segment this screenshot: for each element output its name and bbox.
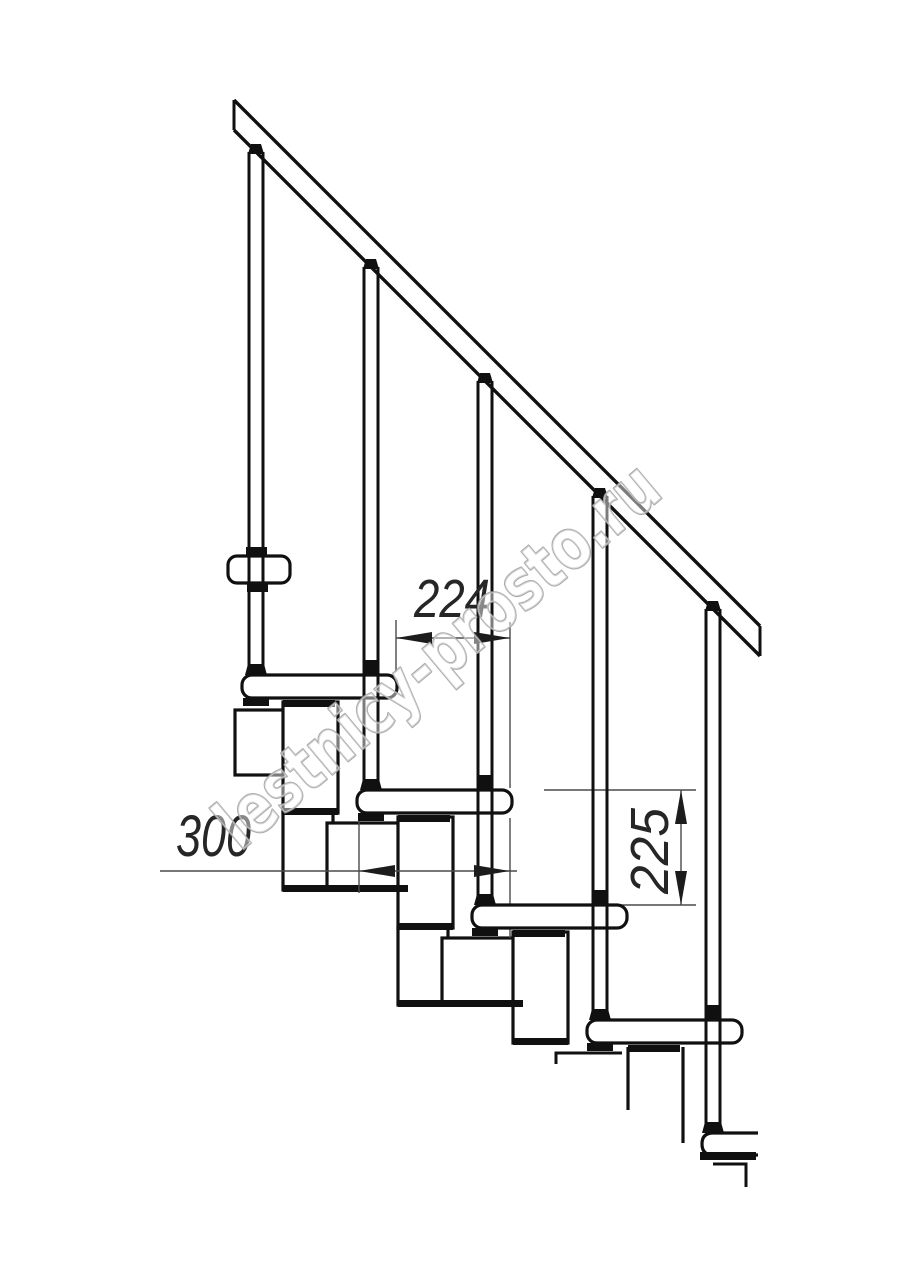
staircase-drawing-canvas: 224300225lestnicy-prosto.ru [0,0,914,1280]
baluster-1-under-tread-nut [243,698,269,706]
joint-band-mid-3 [513,1038,568,1045]
upper-floor-nosing [228,556,290,583]
joint-band-under-tread-3 [513,930,565,937]
joint-band-bottom-2 [398,1000,523,1007]
joint-band-under-tread-4 [628,1045,680,1052]
baluster-4-crossing-sleeve [593,890,607,905]
technical-drawing-page: 224300225lestnicy-prosto.ru [0,0,914,1280]
handrail-upper-line [234,100,760,626]
tread-5 [702,1133,758,1155]
baluster-2-under-tread-nut [358,813,384,821]
module-vertical-box-2 [398,817,453,928]
joint-band-under-tread-2 [398,815,450,822]
baluster-5-crossing-sleeve [706,1005,720,1020]
module-connector-square-3-fragment [556,1053,622,1064]
module-vertical-box-3 [513,932,568,1043]
module-connector-square-2 [442,938,522,1005]
tread-2 [357,790,512,813]
tread-3 [472,905,627,928]
module-connector-square-1 [327,823,407,890]
bottom-step-edge-fragment [713,1164,746,1187]
joint-band-mid-2 [398,923,453,930]
tread-5-joint-band [700,1152,756,1160]
joint-band-bottom-1 [283,885,408,892]
baluster-4-under-tread-nut [587,1043,613,1051]
bottom-fragments [700,1152,756,1187]
baluster-3-crossing-sleeve [478,775,492,790]
dim-label-rise: 225 [620,807,680,895]
baluster-3-under-tread-nut [472,928,498,936]
